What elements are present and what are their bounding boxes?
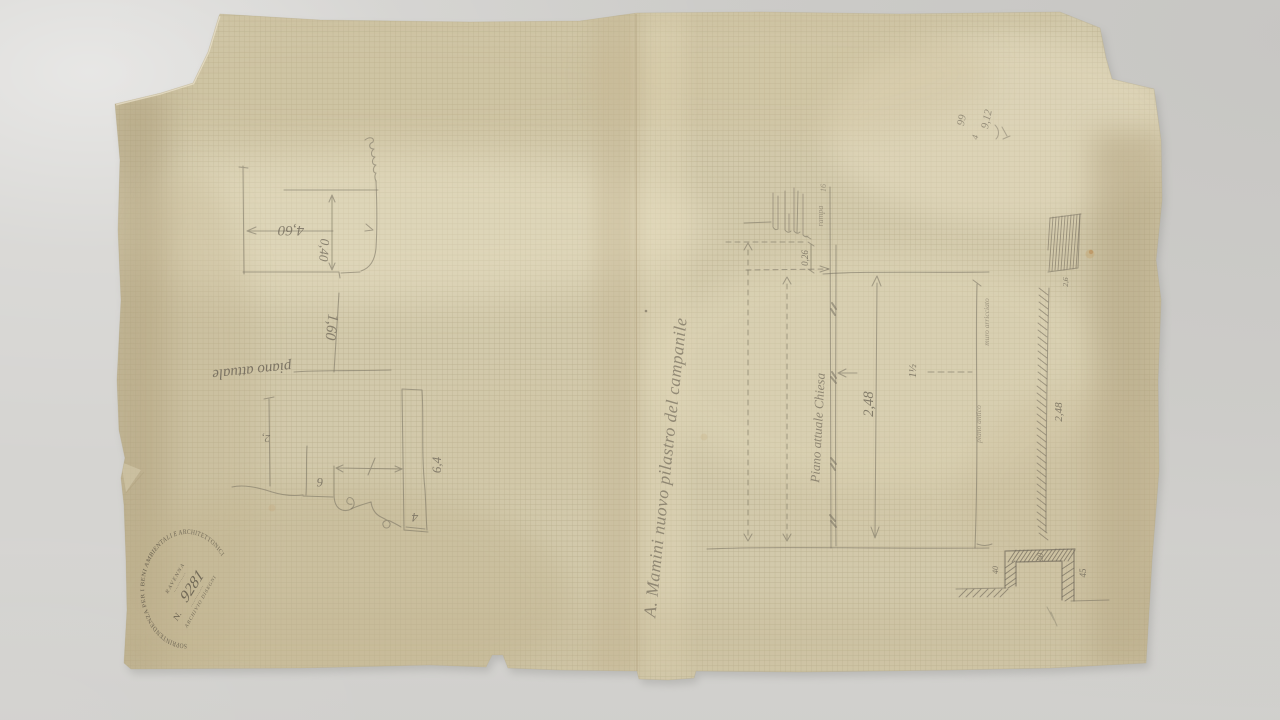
svg-text:0,40: 0,40 — [316, 238, 333, 262]
svg-text:45: 45 — [1078, 568, 1088, 578]
svg-text:2,: 2, — [262, 432, 271, 444]
svg-text:16: 16 — [819, 184, 828, 192]
svg-text:2,48: 2,48 — [861, 391, 877, 417]
svg-text:0,26: 0,26 — [800, 250, 810, 266]
svg-text:1,60: 1,60 — [321, 313, 340, 342]
svg-text:4: 4 — [411, 510, 418, 525]
svg-text:1½: 1½ — [907, 364, 919, 378]
svg-text:muro arricciato: muro arricciato — [982, 298, 991, 346]
svg-text:2,48: 2,48 — [1053, 402, 1065, 422]
svg-text:rampa: rampa — [816, 206, 825, 227]
svg-text:6: 6 — [316, 475, 323, 489]
svg-text:50: 50 — [1036, 553, 1045, 561]
svg-text:6,4: 6,4 — [429, 456, 444, 473]
svg-text:piano antico: piano antico — [974, 405, 983, 444]
svg-text:40: 40 — [991, 566, 1000, 574]
svg-text:4,60: 4,60 — [277, 222, 304, 238]
svg-text:2,6: 2,6 — [1061, 277, 1070, 287]
